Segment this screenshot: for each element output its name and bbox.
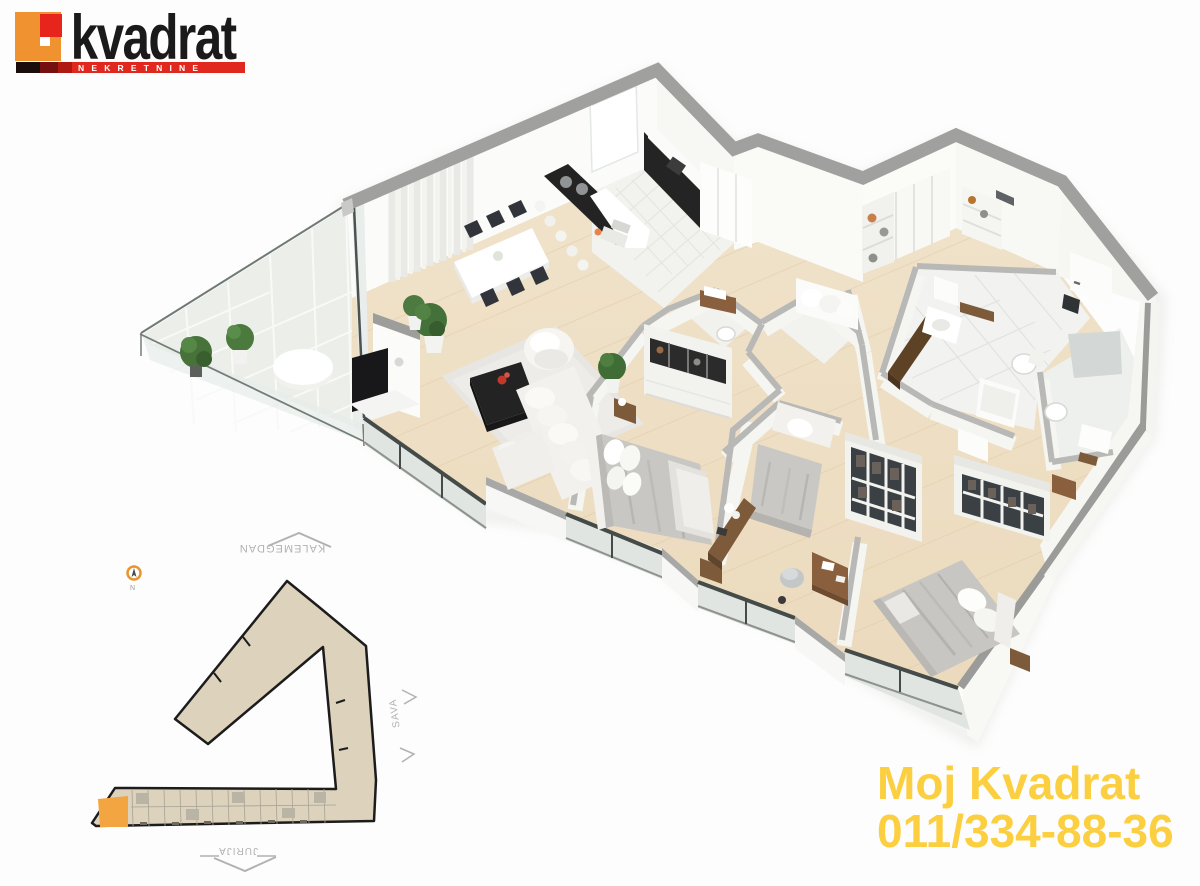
svg-text:Moj Kvadrat: Moj Kvadrat [877, 757, 1140, 809]
svg-text:KALEMEGDAN: KALEMEGDAN [239, 542, 325, 554]
svg-text:NEKRETNINE: NEKRETNINE [78, 63, 205, 73]
svg-text:011/334-88-36: 011/334-88-36 [877, 805, 1174, 857]
svg-text:N: N [130, 585, 135, 592]
svg-text:JURIJA: JURIJA [218, 845, 258, 856]
